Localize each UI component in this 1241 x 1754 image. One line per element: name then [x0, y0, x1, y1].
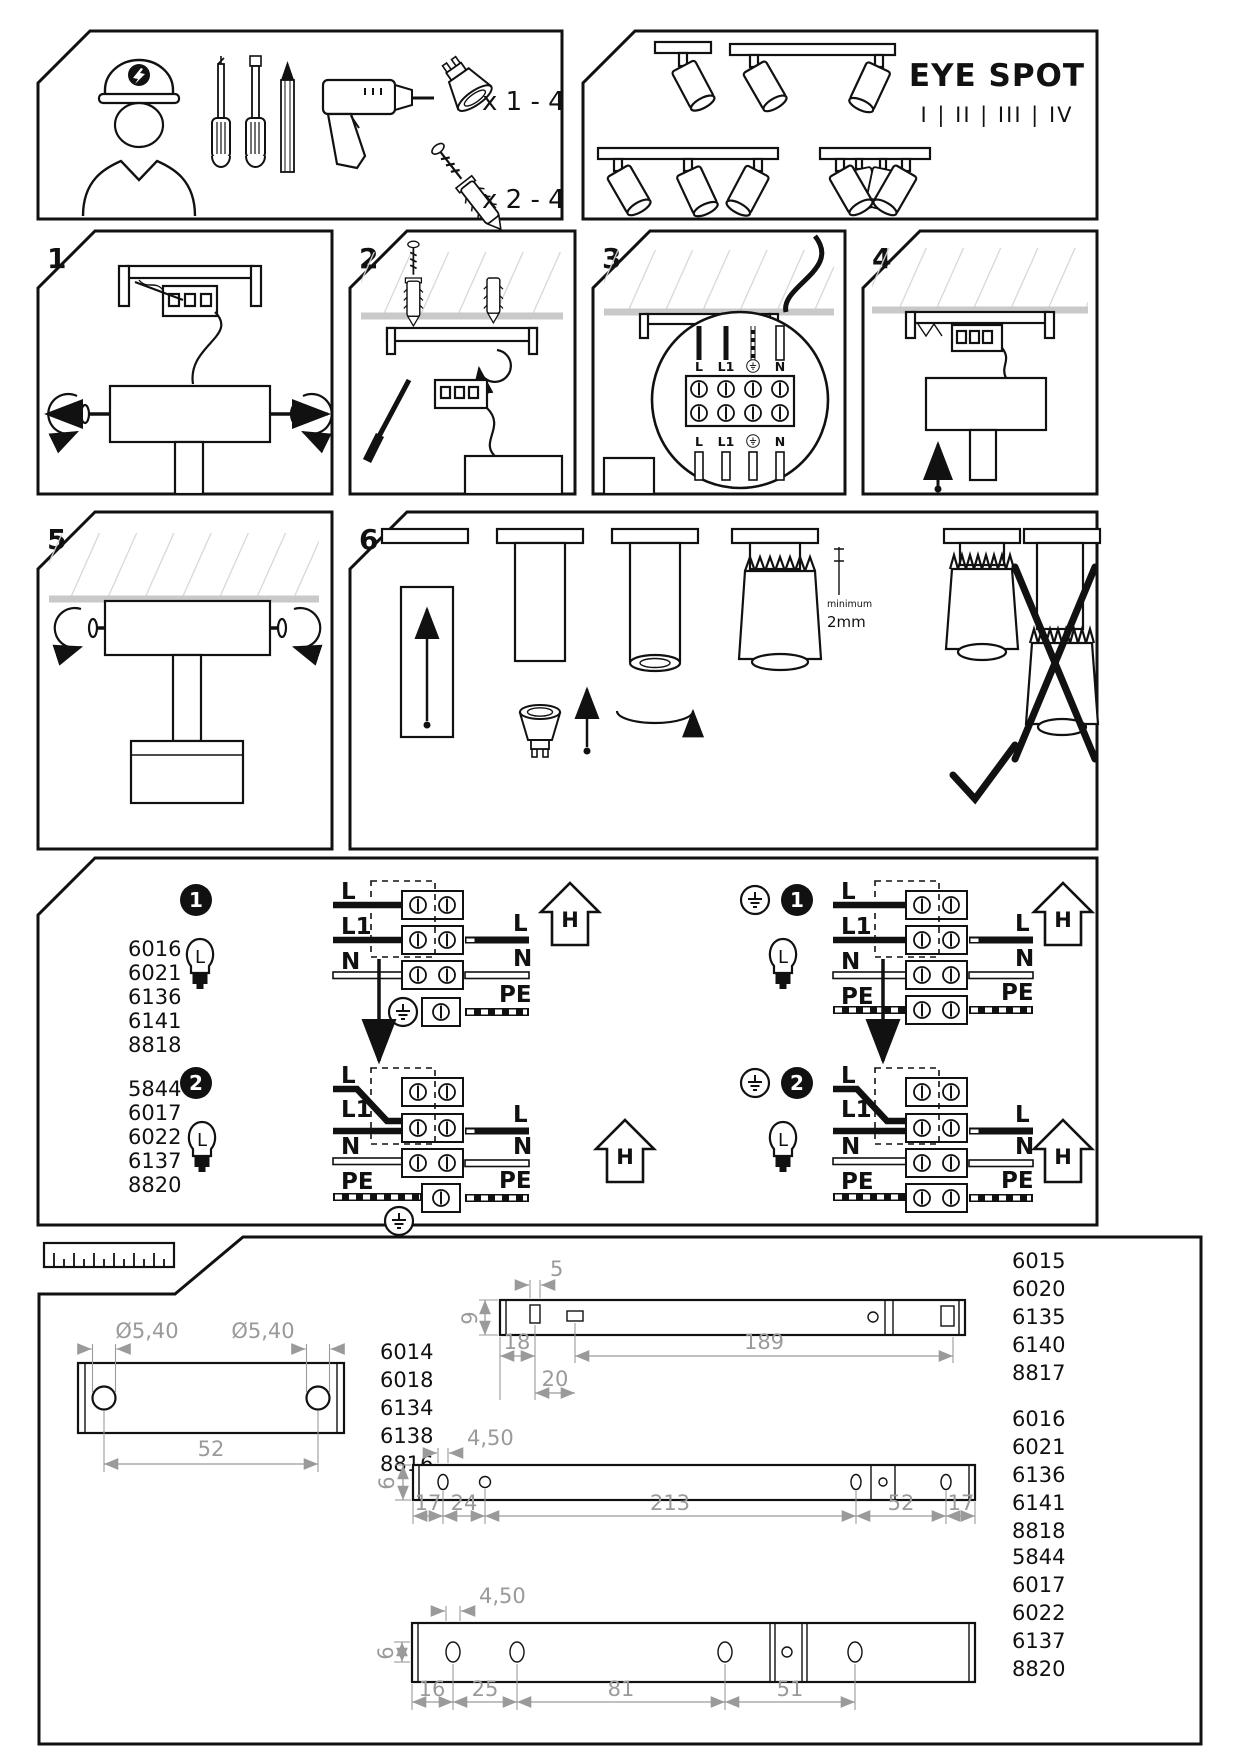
house-letter: H	[1054, 1145, 1072, 1169]
dim-height: 9	[458, 1311, 482, 1324]
panel-dimensions: 5 9 18 189 20 6015 6020 6135 6140 8817 Ø…	[39, 1237, 1201, 1744]
dim-hole: 4,50	[479, 1584, 526, 1608]
model-number: 6022	[128, 1125, 181, 1149]
panel-step-1: 1	[38, 231, 332, 494]
bulb-letter: L	[778, 1130, 788, 1151]
terminal-label-l1-bottom: L1	[718, 434, 735, 449]
drawing-bar1: 5 9 18 189 20	[458, 1257, 965, 1400]
dim-a: 16	[419, 1677, 446, 1701]
panel-product: EYE SPOT I | II | III | IV	[583, 31, 1097, 219]
earth-icon	[747, 360, 760, 373]
anchor-quantity: x 2 - 4	[482, 185, 565, 215]
house-letter: H	[1054, 908, 1072, 932]
out-label-n: N	[1015, 1134, 1034, 1160]
bulb-letter: L	[195, 947, 205, 968]
earth-icon	[389, 998, 417, 1026]
bulb-quantity: x 1 - 4	[482, 87, 565, 117]
model-number: 6020	[1012, 1277, 1065, 1301]
spot-3-illustration	[598, 148, 778, 219]
model-number: 5844	[128, 1077, 181, 1101]
spot-1-illustration	[655, 42, 717, 114]
model-number: 6015	[1012, 1249, 1065, 1273]
terminal-label-l1: L1	[718, 359, 735, 374]
lamp-body-partial	[465, 456, 562, 494]
lamp-body	[105, 601, 270, 655]
terminal-label-l-bottom: L	[695, 434, 703, 449]
tighten-left	[55, 608, 105, 648]
spot-4-illustration	[820, 148, 930, 218]
panel-step-2: 2	[350, 231, 575, 494]
dim-a: 18	[504, 1330, 531, 1354]
in-label-l: L	[341, 1063, 356, 1089]
models-bar1: 6015 6020 6135 6140 8817	[1012, 1249, 1065, 1385]
dim-b: 24	[451, 1491, 478, 1515]
wiring-diagram-right-2: L L1 N PE L N PE H	[833, 1063, 1092, 1212]
house-icon: H	[596, 1120, 654, 1182]
lamp-stem-head	[131, 655, 243, 803]
earth-icon	[747, 435, 760, 448]
model-number: 6021	[1012, 1435, 1065, 1459]
models-bracket: 6014 6018 6134 6138 8816	[380, 1340, 433, 1476]
model-number: 6140	[1012, 1333, 1065, 1357]
lamp-bulb-icon: L	[770, 939, 796, 989]
ceiling-hatch	[49, 533, 319, 597]
out-label-n: N	[513, 946, 532, 972]
wiring-diagram-left-1: L L1 N L N PE H	[333, 879, 599, 1061]
out-label-pe: PE	[499, 1168, 532, 1194]
in-label-n: N	[841, 1134, 860, 1160]
unscrew-left	[47, 394, 109, 434]
in-label-n: N	[341, 1134, 360, 1160]
in-label-l: L	[841, 1063, 856, 1089]
out-label-n: N	[1015, 946, 1034, 972]
in-label-pe: PE	[341, 1169, 374, 1195]
ceiling-hatch	[872, 248, 1088, 308]
bracket-assembly	[119, 266, 261, 384]
panel-wiring: 1 L 6016 6021 6136 6141 8818 L L1 N L N …	[38, 858, 1097, 1235]
dim-a: 17	[415, 1491, 442, 1515]
panel-step-5: 5	[38, 512, 332, 849]
model-number: 8820	[128, 1173, 181, 1197]
terminal-zoom-circle: L L1 N L L1 N	[652, 312, 828, 488]
house-icon: H	[1034, 1120, 1092, 1182]
min-gap-value: 2mm	[827, 613, 866, 631]
out-label-l: L	[513, 1102, 528, 1128]
model-number: 6137	[128, 1149, 181, 1173]
lamp-bulb-icon: L	[187, 939, 213, 989]
instruction-sheet: x 1 - 4 x 2 - 4 EYE SPOT I | II | III | …	[0, 0, 1241, 1754]
house-icon: H	[541, 883, 599, 945]
lamp-bulb-icon: L	[189, 1122, 215, 1172]
model-number: 6016	[1012, 1407, 1065, 1431]
wiring-diagram-left-2: L L1 N PE L N PE H	[333, 1063, 654, 1235]
dim-height: 6	[375, 1476, 399, 1489]
badge-1-number: 1	[790, 888, 804, 912]
panel-step-3: 3 L L1 N L L1 N	[593, 231, 845, 494]
wiring-group2-right: 2 L	[741, 1067, 813, 1172]
dim-c: 213	[650, 1491, 690, 1515]
out-label-l: L	[1015, 1102, 1030, 1128]
model-number: 6137	[1012, 1629, 1065, 1653]
model-number: 6136	[128, 985, 181, 1009]
model-number: 8818	[128, 1033, 181, 1057]
drawing-bracket: Ø5,40 Ø5,40 52	[78, 1319, 344, 1472]
out-label-l: L	[1015, 911, 1030, 937]
product-title: EYE SPOT	[909, 58, 1085, 94]
terminal-label-n-bottom: N	[775, 434, 785, 449]
out-label-l: L	[513, 911, 528, 937]
drawing-bar2: 4,50 6 17 24 213 52 17	[375, 1426, 975, 1524]
model-number: 8817	[1012, 1361, 1065, 1385]
dim-hole1: Ø5,40	[115, 1319, 178, 1343]
ruler-icon	[44, 1243, 174, 1267]
in-label-n: N	[341, 949, 360, 975]
wiring-group1-right: 1 L	[741, 884, 813, 989]
dim-d: 52	[888, 1491, 915, 1515]
dim-hole2: Ø5,40	[231, 1319, 294, 1343]
earth-class-icon	[741, 886, 769, 914]
in-label-l1: L1	[341, 1097, 372, 1123]
bulb-letter: L	[778, 947, 788, 968]
model-number: 6018	[380, 1368, 433, 1392]
step-number: 6	[359, 523, 378, 556]
lamp-body-partial	[604, 458, 654, 494]
model-number: 6017	[1012, 1573, 1065, 1597]
fig-shade-gap: minimum 2mm	[732, 529, 872, 670]
in-label-l1: L1	[841, 914, 872, 940]
ceiling-hatch	[361, 252, 563, 314]
fig-body-up	[382, 529, 468, 737]
fig-wrong	[1015, 529, 1100, 759]
minimum-label: minimum	[827, 599, 872, 610]
model-number: 6021	[128, 961, 181, 985]
panel-step-4: 4	[863, 231, 1097, 494]
panel-tools: x 1 - 4 x 2 - 4	[38, 31, 565, 237]
fig-correct	[944, 529, 1020, 799]
fig-insert-bulb	[497, 529, 591, 757]
in-label-l1: L1	[341, 914, 372, 940]
manual-canvas: x 1 - 4 x 2 - 4 EYE SPOT I | II | III | …	[0, 0, 1241, 1754]
dim-b: 20	[542, 1367, 569, 1391]
in-label-l1: L1	[841, 1097, 872, 1123]
lamp-body	[110, 386, 270, 494]
dim-spacing: 52	[198, 1437, 225, 1461]
dim-d: 51	[777, 1677, 804, 1701]
in-label-n: N	[841, 949, 860, 975]
wiring-group2-left: 2 L 5844 6017 6022 6137 8820	[128, 1067, 215, 1197]
models-bar2: 6016 6021 6136 6141 8818	[1012, 1407, 1065, 1543]
house-icon: H	[1034, 883, 1092, 945]
bulb-letter: L	[197, 1130, 207, 1151]
out-label-n: N	[513, 1134, 532, 1160]
push-up-arrow	[935, 444, 942, 493]
badge-1-number: 1	[189, 888, 203, 912]
lamp-body	[926, 378, 1046, 480]
in-label-pe: PE	[841, 1169, 874, 1195]
wiring-diagram-right-1: L L1 N PE L N PE H	[833, 879, 1092, 1061]
model-number: 6134	[380, 1396, 433, 1420]
model-number: 6022	[1012, 1601, 1065, 1625]
in-label-l: L	[841, 879, 856, 905]
product-variants: I | II | III | IV	[921, 103, 1074, 128]
model-number: 6016	[128, 937, 181, 961]
terminal-block-small	[435, 380, 497, 458]
out-label-pe: PE	[1001, 1168, 1034, 1194]
badge-2-number: 2	[189, 1071, 203, 1095]
bracket-with-terminal	[906, 312, 1054, 378]
dim-b: 25	[472, 1677, 499, 1701]
models-bar3: 5844 6017 6022 6137 8820	[1012, 1545, 1065, 1681]
out-label-pe: PE	[499, 982, 532, 1008]
tighten-right	[270, 608, 320, 648]
screwdrivers-icon	[212, 56, 265, 167]
model-number: 6017	[128, 1101, 181, 1125]
fig-twist-bulb	[612, 529, 698, 723]
step-number: 1	[47, 242, 66, 275]
panel-step-6: 6 minimum 2mm	[350, 512, 1100, 849]
dim-c: 81	[608, 1677, 635, 1701]
model-number: 6136	[1012, 1463, 1065, 1487]
wiring-group1-left: 1 L 6016 6021 6136 6141 8818	[128, 884, 213, 1057]
drill-icon	[323, 80, 434, 168]
in-label-l: L	[341, 879, 356, 905]
terminal-label-l: L	[695, 359, 703, 374]
earth-icon	[385, 1207, 413, 1235]
dim-c: 189	[744, 1330, 784, 1354]
bracket	[387, 328, 537, 354]
model-number: 8820	[1012, 1657, 1065, 1681]
model-number: 8818	[1012, 1519, 1065, 1543]
drawing-bar3: 4,50 6 16 25 81 51	[374, 1584, 975, 1710]
dim-height: 6	[374, 1646, 398, 1659]
house-letter: H	[561, 908, 579, 932]
dim-hole: 4,50	[467, 1426, 514, 1450]
house-letter: H	[616, 1145, 634, 1169]
model-number: 6141	[1012, 1491, 1065, 1515]
model-number: 6135	[1012, 1305, 1065, 1329]
badge-2-number: 2	[790, 1071, 804, 1095]
spot-2-illustration	[730, 44, 895, 115]
model-number: 5844	[1012, 1545, 1065, 1569]
out-label-pe: PE	[1001, 980, 1034, 1006]
dim-slot: 5	[550, 1257, 563, 1281]
model-number: 6138	[380, 1424, 433, 1448]
lamp-bulb-icon: L	[770, 1122, 796, 1172]
pencil-icon	[281, 61, 294, 172]
dim-e: 17	[948, 1491, 975, 1515]
terminal-label-n: N	[775, 359, 785, 374]
check-icon	[953, 745, 1015, 799]
ceiling-hatch	[604, 250, 834, 310]
unscrew-right	[271, 394, 332, 434]
earth-class-icon	[741, 1069, 769, 1097]
electrician-icon	[83, 60, 195, 216]
model-number: 6014	[380, 1340, 433, 1364]
model-number: 6141	[128, 1009, 181, 1033]
